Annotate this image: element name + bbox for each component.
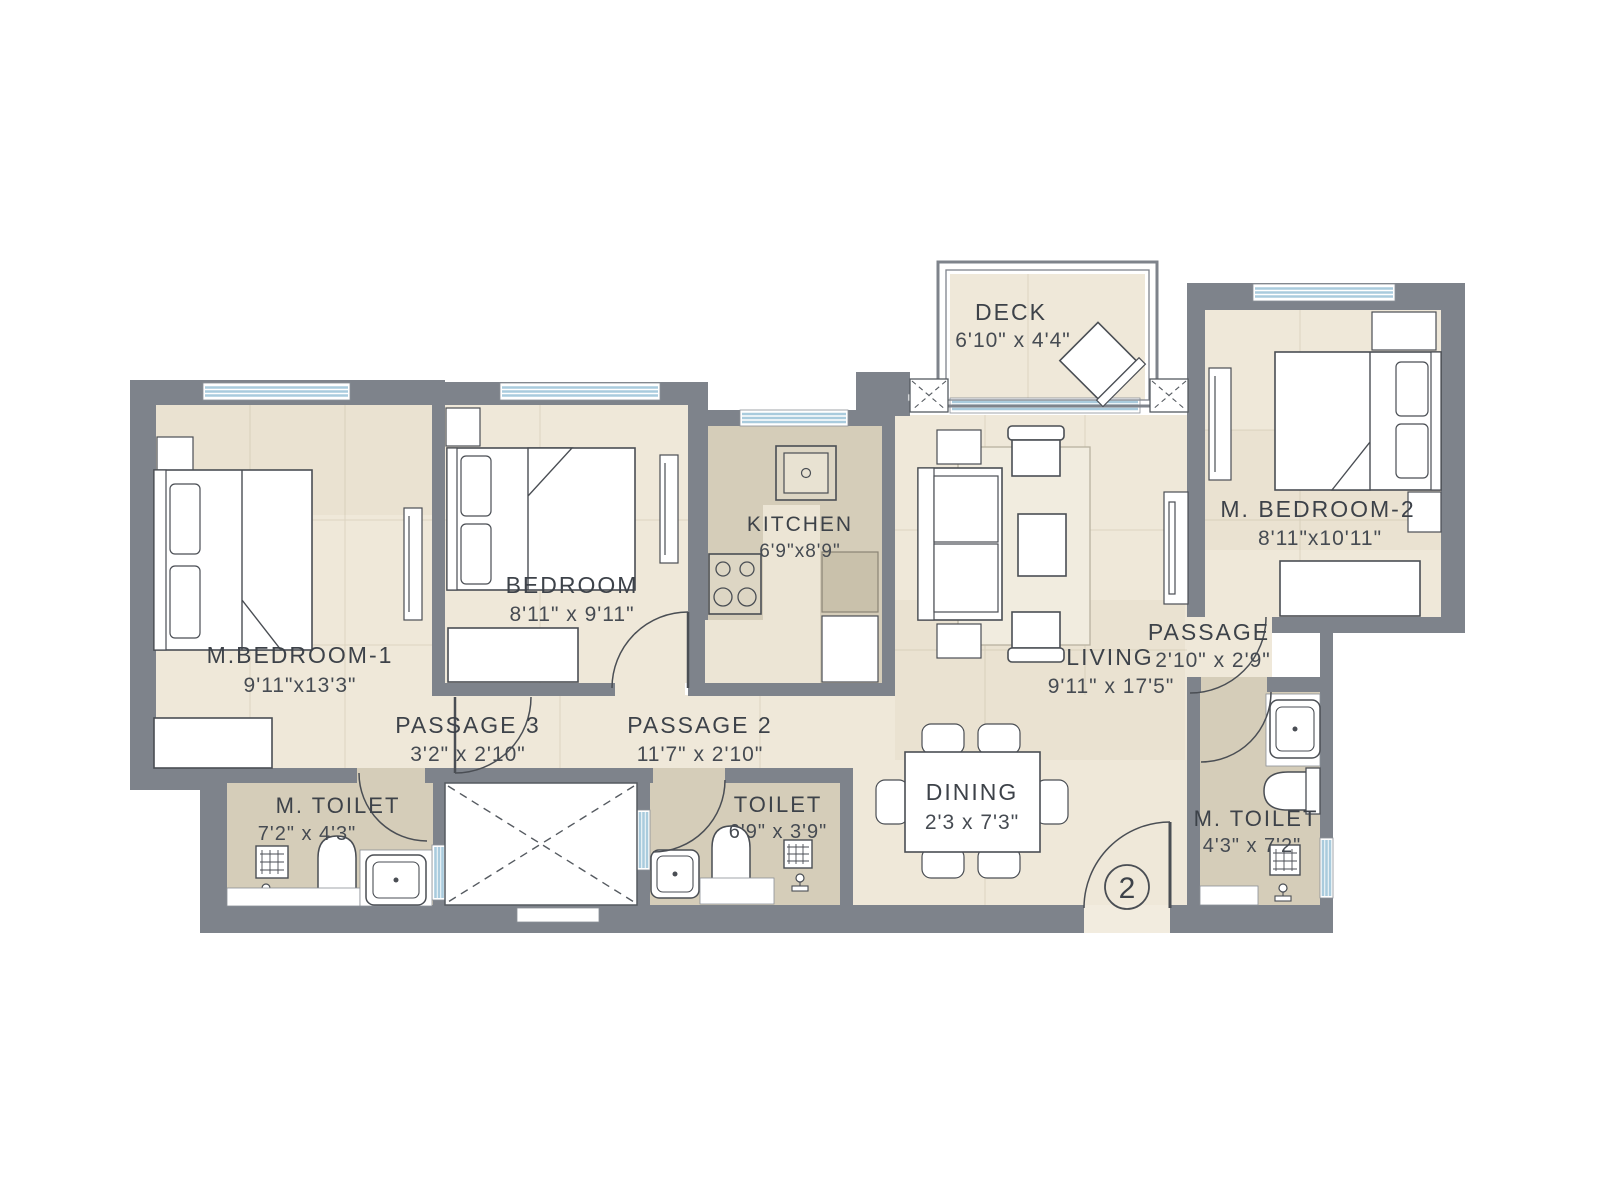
toilet-window xyxy=(637,810,650,870)
toilet-ledge xyxy=(227,888,360,906)
bedroom-tv-unit xyxy=(660,455,678,563)
kitchen-walkway xyxy=(705,620,763,683)
mbr2-wardrobe xyxy=(1280,561,1420,616)
living-side-table xyxy=(937,430,981,464)
mtoilet1-window xyxy=(432,845,446,900)
service-shaft xyxy=(445,783,637,905)
mbr1-pillow xyxy=(170,566,200,638)
toilet-dims: 6'9" x 3'9" xyxy=(729,821,827,843)
floor-plan-page: M.BEDROOM-1 9'11"x13'3" BEDROOM 8'11" x … xyxy=(0,0,1600,1200)
living-armchair-bottom xyxy=(1008,612,1064,662)
bedroom-window xyxy=(500,383,660,400)
passage3-dims: 3'2" x 2'10" xyxy=(410,743,526,766)
bedroom-pillow xyxy=(461,456,491,516)
kitchen-sink xyxy=(776,446,836,500)
kitchen-label: KITCHEN xyxy=(747,513,853,536)
toilet-ledge xyxy=(700,878,774,904)
mtoilet2-window xyxy=(1320,838,1333,898)
mbr2-pillow xyxy=(1396,424,1428,478)
living-side-table xyxy=(937,624,981,658)
living-sofa xyxy=(918,468,1002,620)
living-armchair-top xyxy=(1008,426,1064,476)
mbr2-dims: 8'11"x10'11" xyxy=(1258,527,1382,550)
mbr1-headboard xyxy=(154,470,166,650)
mtoilet1-dims: 7'2" x 4'3" xyxy=(258,823,356,845)
mbr1-pillow xyxy=(170,484,200,554)
dining-chair xyxy=(876,780,908,824)
passage-label: PASSAGE xyxy=(1148,619,1270,645)
mtoilet2-label: M. TOILET xyxy=(1194,806,1319,831)
deck-dims: 6'10" x 4'4" xyxy=(955,329,1071,352)
mbr1-wardrobe xyxy=(154,718,272,768)
mbr1-dims: 9'11"x13'3" xyxy=(244,674,357,697)
living-dims: 9'11" x 17'5" xyxy=(1048,675,1175,698)
mbr2-label: M. BEDROOM-2 xyxy=(1220,496,1415,522)
bedroom-headboard xyxy=(447,448,457,590)
unit-number: 2 xyxy=(1119,872,1136,905)
toilet-label: TOILET xyxy=(734,792,823,817)
passage-dims: 2'10" x 2'9" xyxy=(1155,649,1271,672)
kitchen-hob xyxy=(709,554,761,614)
mbr1-tv-unit xyxy=(404,508,422,620)
mtoilet1-label: M. TOILET xyxy=(276,793,401,818)
dining-chair xyxy=(978,724,1020,754)
shaft-notch xyxy=(517,908,599,922)
living-coffee-table xyxy=(1018,514,1066,576)
mbr2-headboard xyxy=(1431,352,1441,490)
bedroom-niche xyxy=(446,408,480,446)
kitchen-dims: 6'9"x8'9" xyxy=(759,541,841,562)
washbasin xyxy=(1270,700,1320,758)
kitchen-fridge xyxy=(822,616,878,682)
mbr1-window xyxy=(203,383,350,400)
mbr1-label: M.BEDROOM-1 xyxy=(207,642,394,668)
mbr2-pillow xyxy=(1396,362,1428,416)
bedroom-label: BEDROOM xyxy=(506,572,639,598)
dining-chair xyxy=(922,724,964,754)
washbasin xyxy=(366,855,426,905)
dining-label: DINING xyxy=(926,779,1019,805)
living-tv-unit xyxy=(1164,492,1188,604)
bedroom-wardrobe xyxy=(448,628,578,682)
bedroom-pillow xyxy=(461,524,491,584)
passage2-label: PASSAGE 2 xyxy=(627,712,772,738)
shower-drain xyxy=(256,846,288,878)
passage3-label: PASSAGE 3 xyxy=(395,712,540,738)
mbr2-dresser xyxy=(1209,368,1231,480)
shower-drain xyxy=(784,840,812,868)
duct-box-right xyxy=(1150,379,1188,412)
floor-plan-drawing: M.BEDROOM-1 9'11"x13'3" BEDROOM 8'11" x … xyxy=(0,0,1600,1200)
living-label: LIVING xyxy=(1066,644,1153,670)
dining-dims: 2'3 x 7'3" xyxy=(925,811,1019,834)
bedroom-dims: 8'11" x 9'11" xyxy=(509,603,634,626)
mbr2-window xyxy=(1253,284,1395,301)
deck-label: DECK xyxy=(975,299,1047,325)
dining-chair xyxy=(1036,780,1068,824)
toilet-ledge xyxy=(1200,886,1258,905)
mbr2-niche xyxy=(1372,312,1436,350)
duct-box-left xyxy=(910,379,948,412)
kitchen-window xyxy=(740,410,848,426)
mtoilet2-dims: 4'3" x 7'2" xyxy=(1203,835,1301,857)
washbasin xyxy=(651,850,699,898)
passage2-dims: 11'7" x 2'10" xyxy=(637,743,764,766)
